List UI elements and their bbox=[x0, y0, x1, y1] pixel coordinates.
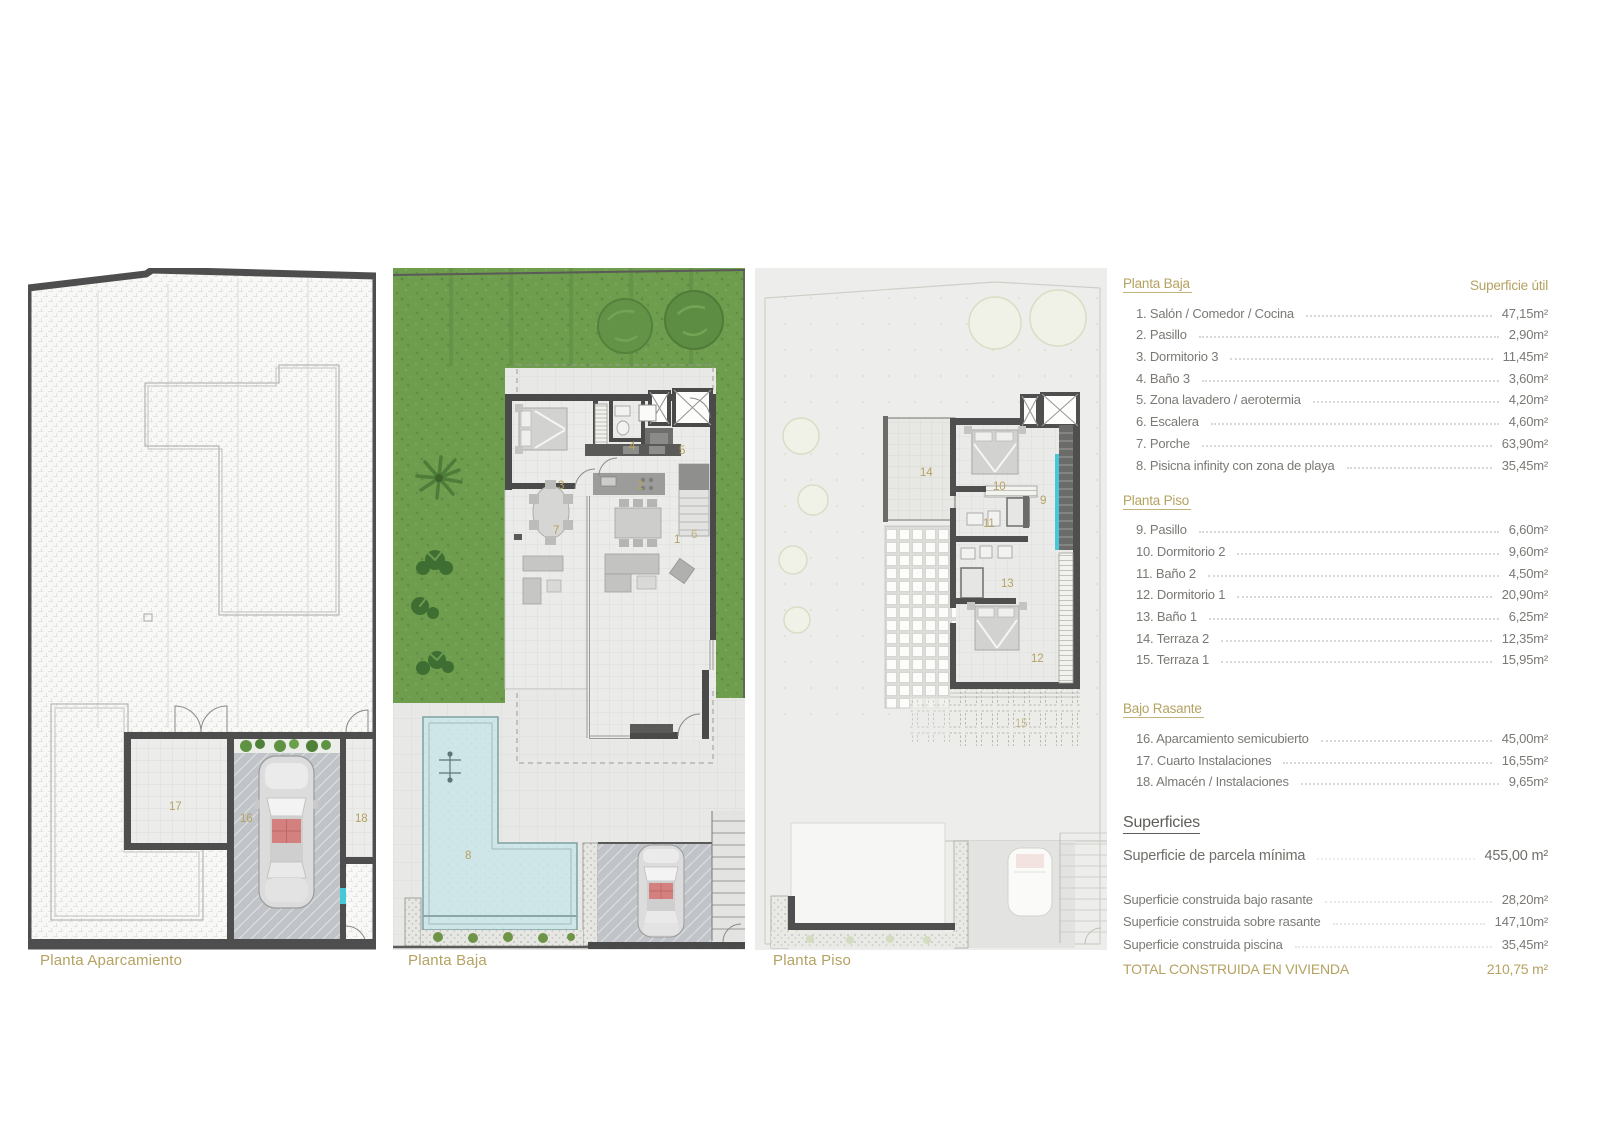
plan-title-piso: Planta Piso bbox=[773, 952, 851, 969]
room-label-9: 9 bbox=[1040, 495, 1046, 507]
column-header-superficie: Superficie útil bbox=[1470, 278, 1548, 293]
legend-row: 13. Baño 16,25m² bbox=[1123, 602, 1548, 624]
terrace-2 bbox=[883, 416, 955, 522]
legend-row: 7. Porche63,90m² bbox=[1123, 429, 1548, 451]
room-label-8: 8 bbox=[465, 850, 471, 862]
section-wall bbox=[124, 732, 376, 739]
wall bbox=[956, 598, 1016, 604]
plan-title-aparcamiento: Planta Aparcamiento bbox=[40, 952, 182, 969]
legend-row: 12. Dormitorio 120,90m² bbox=[1123, 581, 1548, 603]
wall bbox=[956, 486, 986, 492]
legend-row: 17. Cuarto Instalaciones16,55m² bbox=[1123, 746, 1548, 768]
total-value: 210,75 m² bbox=[1487, 961, 1548, 977]
floorplan-planta-baja: 3 4 2 5 6 7 1 8 bbox=[393, 268, 745, 950]
room-label-5: 5 bbox=[679, 445, 685, 457]
room-label-17: 17 bbox=[169, 801, 181, 813]
room-instalaciones bbox=[124, 732, 232, 850]
section-title-bajo-rasante: Bajo Rasante bbox=[1123, 701, 1204, 718]
bed-icon bbox=[964, 426, 1026, 474]
summary-row: Superficie construida bajo rasante28,20m… bbox=[1123, 884, 1548, 907]
wall bbox=[956, 536, 1028, 542]
room-label-12: 12 bbox=[1031, 653, 1043, 665]
section-planta-piso-items: 9. Pasillo6,60m² 10. Dormitorio 29,60m² … bbox=[1123, 516, 1548, 668]
total-label: TOTAL CONSTRUIDA EN VIVIENDA bbox=[1123, 961, 1349, 977]
legend-row: 11. Baño 24,50m² bbox=[1123, 559, 1548, 581]
car-icon bbox=[638, 845, 684, 937]
legend-section-header: Planta Piso bbox=[1123, 493, 1548, 510]
floorplan-planta-piso: 14 10 9 11 13 12 15 bbox=[755, 268, 1107, 950]
legend-row: 2. Pasillo2,90m² bbox=[1123, 321, 1548, 343]
section-planta-baja-items: 1. Salón / Comedor / Cocina47,15m² 2. Pa… bbox=[1123, 299, 1548, 473]
legend-row: 15. Terraza 115,95m² bbox=[1123, 646, 1548, 668]
room-label-16: 16 bbox=[240, 813, 252, 825]
surface-legend: Planta Baja Superficie útil 1. Salón / C… bbox=[1123, 276, 1548, 977]
legend-row: 14. Terraza 212,35m² bbox=[1123, 624, 1548, 646]
stairs bbox=[679, 464, 709, 536]
pergola-grid bbox=[885, 526, 958, 708]
room-label-4: 4 bbox=[629, 441, 636, 453]
floorplan-aparcamiento: 17 16 18 bbox=[28, 268, 376, 950]
room-label-15: 15 bbox=[1015, 718, 1027, 730]
room-label-14: 14 bbox=[920, 467, 933, 479]
legend-row: 4. Baño 33,60m² bbox=[1123, 364, 1548, 386]
dining-table bbox=[615, 499, 661, 547]
ghost-ground-floor bbox=[771, 823, 1107, 948]
room-label-6: 6 bbox=[691, 529, 697, 541]
glass-marker bbox=[340, 888, 346, 904]
section-title-planta-piso: Planta Piso bbox=[1123, 493, 1191, 510]
bottom-wall bbox=[28, 939, 376, 946]
legend-row: 3. Dormitorio 311,45m² bbox=[1123, 342, 1548, 364]
legend-row: 8. Pisicna infinity con zona de playa35,… bbox=[1123, 451, 1548, 473]
bed-icon bbox=[515, 404, 567, 454]
shaft-boxes bbox=[650, 390, 711, 425]
plan-title-baja: Planta Baja bbox=[408, 952, 487, 969]
room-label-1: 1 bbox=[674, 534, 680, 546]
wardrobe bbox=[595, 404, 607, 448]
room-label-10: 10 bbox=[993, 481, 1005, 493]
floorplan-sheet: 17 16 18 bbox=[0, 0, 1600, 1131]
summary-row: Superficie construida sobre rasante147,1… bbox=[1123, 907, 1548, 930]
legend-row: 6. Escalera4,60m² bbox=[1123, 407, 1548, 429]
summary-row: Superficie construida piscina35,45m² bbox=[1123, 929, 1548, 952]
ghost-car-icon bbox=[1008, 848, 1052, 916]
shaft-boxes bbox=[1022, 394, 1078, 426]
section-title-planta-baja: Planta Baja bbox=[1123, 276, 1192, 293]
room-label-11: 11 bbox=[983, 518, 995, 530]
room-label-3: 3 bbox=[558, 480, 564, 492]
car-icon bbox=[255, 756, 318, 908]
room-label-13: 13 bbox=[1001, 578, 1013, 590]
legend-row: 18. Almacén / Instalaciones9,65m² bbox=[1123, 768, 1548, 790]
total-row: TOTAL CONSTRUIDA EN VIVIENDA 210,75 m² bbox=[1123, 961, 1548, 977]
room-label-18: 18 bbox=[355, 813, 367, 825]
room-label-7: 7 bbox=[553, 525, 559, 537]
legend-row: 1. Salón / Comedor / Cocina47,15m² bbox=[1123, 299, 1548, 321]
bed-icon bbox=[967, 602, 1027, 650]
summary-rows: Superficie construida bajo rasante28,20m… bbox=[1123, 884, 1548, 952]
parcela-row: Superficie de parcela mínima 455,00 m² bbox=[1123, 848, 1548, 864]
room-label-2: 2 bbox=[637, 480, 643, 492]
legend-row: 10. Dormitorio 29,60m² bbox=[1123, 537, 1548, 559]
legend-row: 9. Pasillo6,60m² bbox=[1123, 516, 1548, 538]
legend-row: 5. Zona lavadero / aerotermia4,20m² bbox=[1123, 386, 1548, 408]
summary-title: Superficies bbox=[1123, 814, 1200, 834]
section-bajo-rasante-items: 16. Aparcamiento semicubierto45,00m² 17.… bbox=[1123, 724, 1548, 789]
exterior-steps bbox=[712, 811, 745, 941]
legend-section-header: Bajo Rasante bbox=[1123, 701, 1548, 718]
legend-row: 16. Aparcamiento semicubierto45,00m² bbox=[1123, 724, 1548, 746]
legend-section-header: Planta Baja Superficie útil bbox=[1123, 276, 1548, 293]
